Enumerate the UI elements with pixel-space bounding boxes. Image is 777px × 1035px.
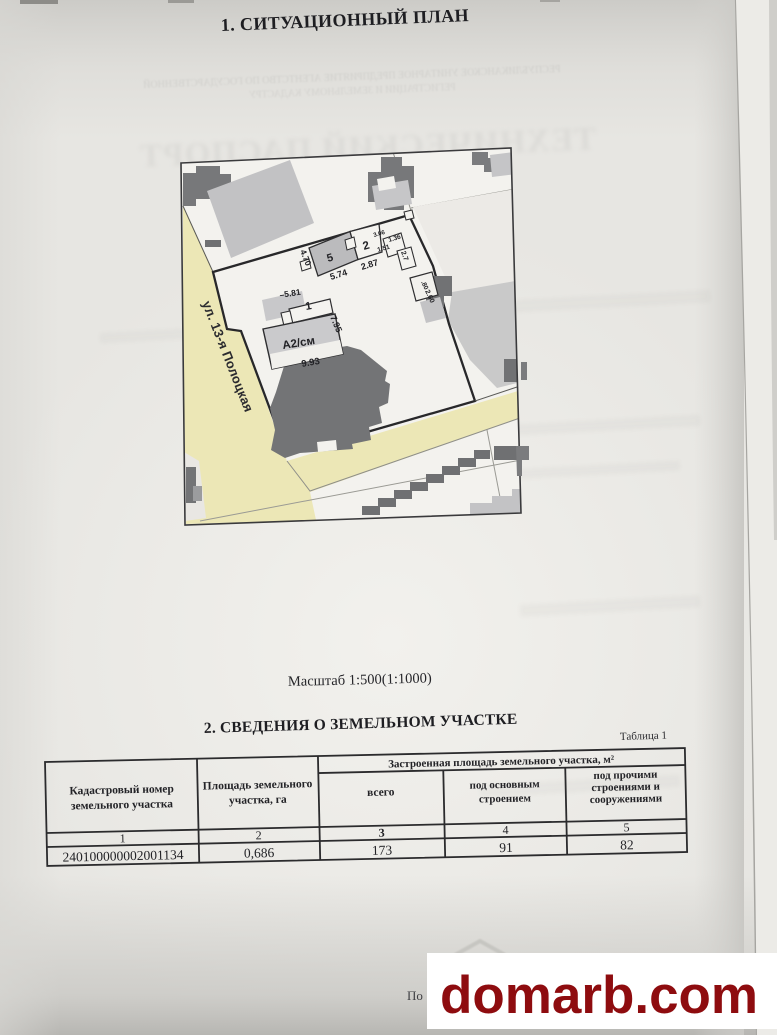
svg-text:земельного участка: земельного участка [71, 798, 174, 812]
svg-text:91: 91 [499, 840, 513, 855]
svg-text:Площадь земельного: Площадь земельного [203, 778, 313, 792]
svg-text:domarb.com: domarb.com [440, 966, 758, 1025]
svg-text:5: 5 [623, 820, 629, 834]
svg-text:всего: всего [367, 786, 395, 799]
svg-text:82: 82 [620, 837, 634, 852]
svg-text:По: По [407, 988, 423, 1003]
svg-text:173: 173 [372, 842, 393, 857]
svg-text:2: 2 [255, 828, 261, 842]
svg-text:сооружениями: сооружениями [590, 793, 663, 807]
svg-text:0,686: 0,686 [244, 845, 275, 861]
svg-text:4: 4 [502, 823, 508, 837]
svg-text:3: 3 [378, 826, 384, 840]
svg-text:под основным: под основным [469, 778, 540, 792]
svg-text:участка, га: участка, га [229, 794, 287, 807]
svg-text:строением: строением [479, 792, 532, 805]
svg-text:Таблица 1: Таблица 1 [620, 730, 667, 743]
svg-text:240100000002001134: 240100000002001134 [62, 847, 184, 865]
svg-text:1: 1 [120, 831, 126, 845]
svg-text:Кадастровый номер: Кадастровый номер [69, 783, 174, 797]
